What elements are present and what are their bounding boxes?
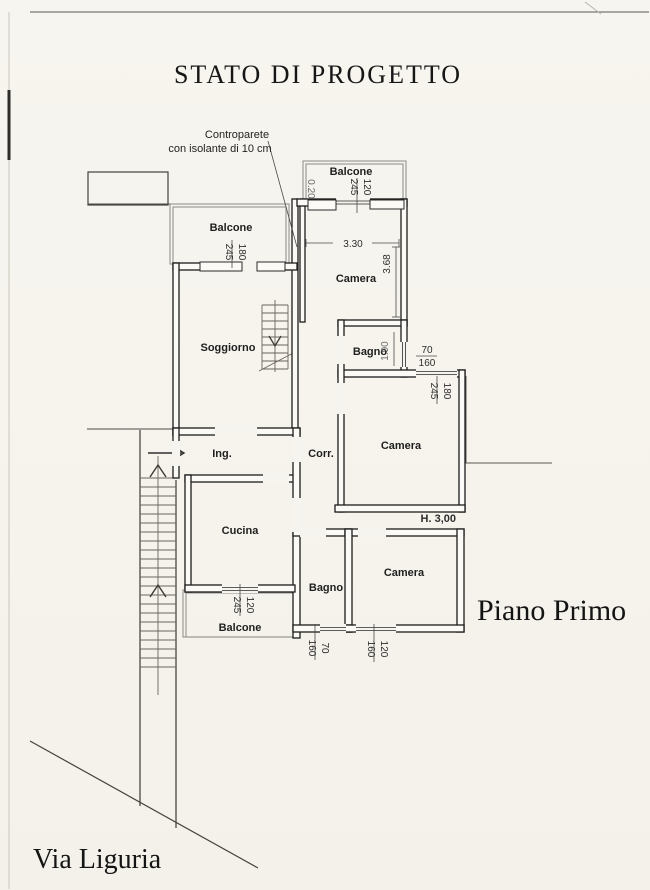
room-label-corridoio: Corr. xyxy=(308,448,334,460)
window-dim-bagno-bottom-height: 160 xyxy=(306,640,317,657)
door-openings xyxy=(172,262,386,537)
page-title: STATO DI PROGETTO xyxy=(174,60,462,89)
room-label-balcone-left: Balcone xyxy=(210,222,253,234)
internal-staircase xyxy=(259,300,297,372)
room-label-cucina: Cucina xyxy=(222,525,260,537)
room-label-balcone-bottom: Balcone xyxy=(219,622,262,634)
window-dim-camera-mid-width: 180 xyxy=(441,383,452,400)
room-label-soggiorno: Soggiorno xyxy=(201,342,256,354)
dim-camera-top-depth: 3.68 xyxy=(382,254,393,274)
window-dim-balcone-top-height: 245 xyxy=(348,179,359,196)
scanned-floor-plan-page: STATO DI PROGETTO Controparete con isola… xyxy=(0,0,650,890)
adjacent-building-outline xyxy=(88,172,170,205)
dim-camera-top-width: 3.30 xyxy=(343,239,363,250)
caption-piano-primo: Piano Primo xyxy=(477,594,626,627)
scan-artifacts xyxy=(9,2,649,889)
window-dim-balcone-top-width: 120 xyxy=(361,179,372,196)
annotation-line2: con isolante di 10 cm xyxy=(168,143,271,155)
room-label-camera-mid: Camera xyxy=(381,440,422,452)
dim-room-height: H. 3,00 xyxy=(421,513,456,525)
window-dim-balcone-left-width: 180 xyxy=(236,244,247,261)
window-dim-balcone-left-height: 245 xyxy=(223,244,234,261)
caption-via-liguria: Via Liguria xyxy=(33,844,162,875)
window-dim-camera-mid-height: 245 xyxy=(428,383,439,400)
dim-wall-thickness: 0.20 xyxy=(305,179,316,199)
balcony-rails xyxy=(170,161,406,637)
window-dim-bagno-mid-width: 70 xyxy=(421,345,433,356)
property-line xyxy=(466,376,552,463)
window-dim-camera-bottom-height: 160 xyxy=(365,641,376,658)
window-dim-camera-bottom-width: 120 xyxy=(378,641,389,658)
window-dim-cucina-width: 120 xyxy=(244,597,255,614)
window-dim-bagno-bottom-width: 70 xyxy=(319,642,330,654)
room-label-balcone-top: Balcone xyxy=(330,166,373,178)
floor-plan-drawing: STATO DI PROGETTO Controparete con isola… xyxy=(0,0,650,890)
room-label-ingresso: Ing. xyxy=(212,448,232,460)
room-label-bagno-bottom: Bagno xyxy=(309,582,344,594)
annotation-line1: Controparete xyxy=(205,129,269,141)
window-dim-bagno-mid-height: 160 xyxy=(419,358,436,369)
dim-bagno-mid-depth: 1.90 xyxy=(380,341,391,361)
room-label-camera-bottom: Camera xyxy=(384,567,425,579)
window-dim-cucina-height: 245 xyxy=(231,597,242,614)
external-staircase xyxy=(87,429,176,828)
room-label-camera-top: Camera xyxy=(336,273,377,285)
